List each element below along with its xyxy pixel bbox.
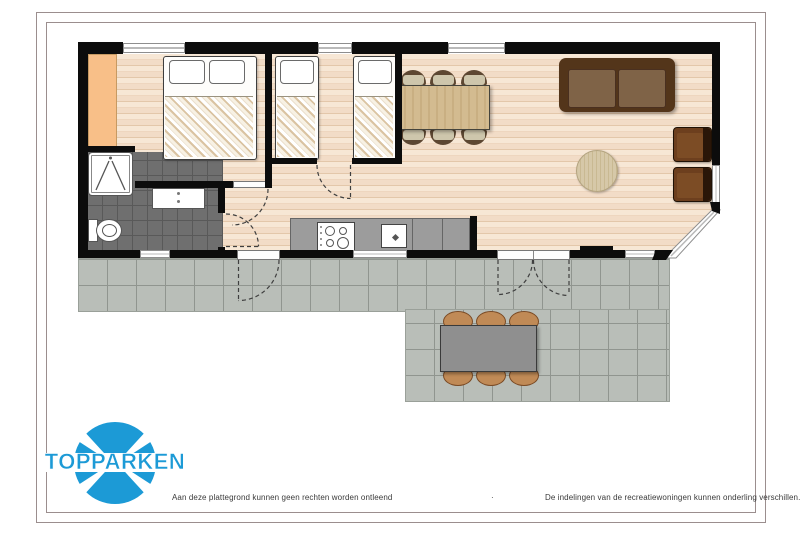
armchair — [673, 127, 712, 162]
sofa-cushion — [618, 69, 666, 108]
disclaimer-separator: · — [491, 493, 494, 502]
logo-text: TOPPARKEN — [45, 449, 186, 474]
wall-segment — [712, 42, 720, 165]
wall-segment — [218, 247, 225, 251]
disclaimer-left: Aan deze plattegrond kunnen geen rechten… — [172, 493, 392, 502]
front-door — [237, 250, 280, 260]
pillow — [209, 60, 245, 84]
stove — [317, 222, 355, 251]
window — [625, 250, 655, 258]
faucet-dot — [177, 200, 180, 203]
counter-divider — [412, 218, 413, 252]
wall-segment — [352, 42, 448, 54]
sofa — [559, 58, 675, 112]
burner — [339, 227, 347, 235]
pillow — [169, 60, 205, 84]
sofa-cushion — [568, 69, 616, 108]
disclaimer-right: De indelingen van de recreatiewoningen k… — [545, 493, 800, 502]
terrace-double-door — [497, 250, 570, 260]
window — [712, 165, 720, 210]
duvet — [165, 96, 253, 157]
wall-segment — [88, 250, 140, 258]
window — [353, 250, 407, 258]
wall-segment — [135, 181, 233, 188]
wall-segment — [265, 158, 317, 164]
counter-divider — [442, 218, 443, 252]
window — [318, 43, 352, 53]
pillow — [358, 60, 392, 84]
shower — [88, 152, 133, 196]
window — [123, 43, 185, 53]
dining-table — [397, 85, 490, 130]
window — [448, 43, 505, 53]
wall-segment — [185, 42, 318, 54]
burner — [325, 226, 335, 236]
wall-segment — [505, 42, 720, 54]
outdoor-table — [440, 325, 537, 372]
wall-segment — [170, 250, 237, 258]
wall-segment — [218, 188, 225, 213]
faucet-dot — [392, 234, 399, 241]
wall-segment — [395, 54, 402, 164]
round-rug — [576, 150, 618, 192]
burner — [326, 239, 334, 247]
duvet — [277, 96, 315, 157]
wall-segment — [265, 54, 272, 188]
terrace-upper — [78, 258, 670, 312]
burner — [337, 237, 349, 249]
wall-segment — [655, 250, 672, 258]
toilet-seat — [102, 224, 117, 237]
threshold — [580, 246, 613, 252]
wall-segment — [280, 250, 353, 258]
faucet-dot — [177, 192, 180, 195]
topparken-logo: TOPPARKEN — [42, 412, 192, 516]
window — [140, 250, 170, 258]
wall-segment — [78, 146, 135, 152]
pillow — [280, 60, 314, 84]
wardrobe — [88, 54, 117, 147]
wall-segment — [470, 216, 477, 252]
bedroom1-door — [233, 181, 268, 188]
wall-segment — [407, 250, 497, 258]
duvet — [355, 96, 393, 157]
kitchen-sink — [381, 224, 407, 248]
armchair — [673, 167, 712, 202]
